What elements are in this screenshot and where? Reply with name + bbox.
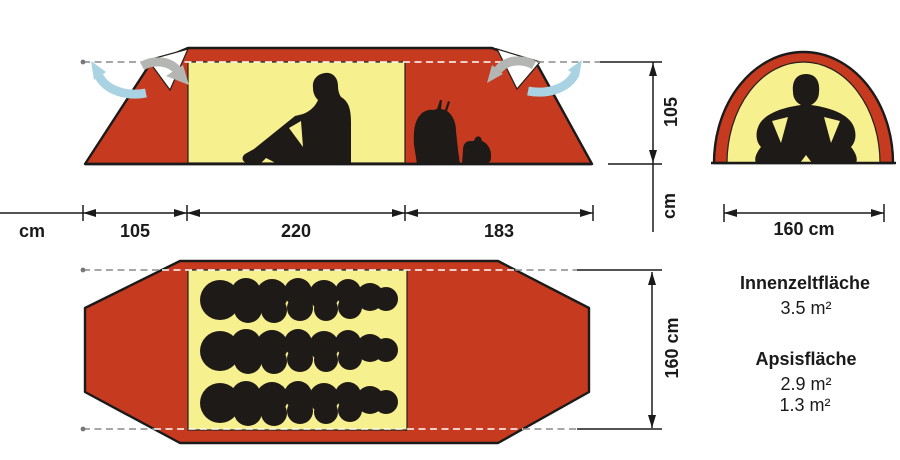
floor-plan-width-label: 160 cm <box>662 317 682 378</box>
apse-area-value-2: 1.3 m² <box>779 395 830 415</box>
reference-dot <box>81 268 86 273</box>
height-unit-label: cm <box>659 193 679 219</box>
height-dimension-label: 105 <box>661 97 681 127</box>
height-dimension: 105 cm <box>608 62 681 232</box>
inner-tent-area-value: 3.5 m² <box>780 298 831 318</box>
reference-dot <box>81 60 86 65</box>
inner-tent-area-title: Innenzeltfläche <box>740 273 870 293</box>
apse-area-value-1: 2.9 m² <box>780 374 831 394</box>
length-dimension-row: cm 105 220 183 <box>0 205 593 241</box>
front-view: 160 cm <box>711 52 896 239</box>
inner-tent-length-label: 220 <box>281 221 311 241</box>
length-unit-label: cm <box>19 221 45 241</box>
floor-plan-width-dimension: 160 cm <box>648 272 682 428</box>
floor-plan: 160 cm <box>81 261 682 443</box>
sleeping-bags <box>200 278 398 426</box>
front-width-label: 160 cm <box>773 219 834 239</box>
apse-area-title: Apsisfläche <box>755 349 856 369</box>
area-info: Innenzeltfläche 3.5 m² Apsisfläche 2.9 m… <box>740 273 870 415</box>
side-view: 105 cm <box>81 48 681 232</box>
diagram-canvas: 105 cm cm 105 220 183 <box>0 0 900 460</box>
left-apse-length-label: 105 <box>120 221 150 241</box>
front-width-dimension: 160 cm <box>724 204 884 239</box>
reference-dot <box>81 427 86 432</box>
tent-dimensions-diagram: 105 cm cm 105 220 183 <box>0 0 900 460</box>
right-apse-length-label: 183 <box>484 221 514 241</box>
